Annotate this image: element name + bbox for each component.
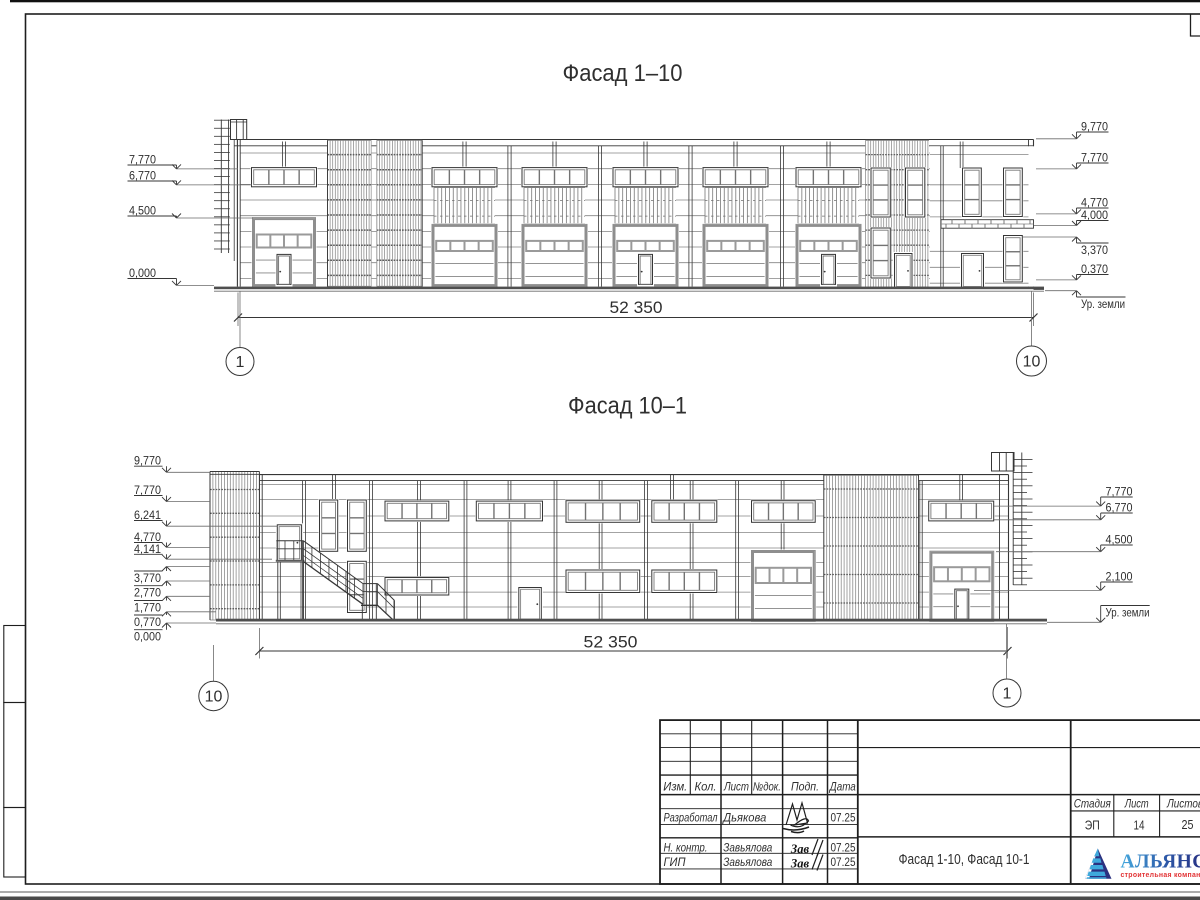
svg-text:2,770: 2,770 — [134, 588, 161, 600]
svg-text:ЭП: ЭП — [1085, 819, 1100, 833]
svg-text:Подп.: Подп. — [791, 780, 819, 794]
svg-text:Стадия: Стадия — [1074, 797, 1111, 811]
svg-text:Разработал: Разработал — [664, 813, 718, 825]
svg-text:52 350: 52 350 — [610, 299, 663, 317]
svg-text:Лист: Лист — [723, 780, 749, 794]
svg-text:Кол.: Кол. — [695, 780, 717, 794]
svg-text:Дьякова: Дьякова — [721, 813, 766, 825]
svg-text:Изм.: Изм. — [663, 780, 687, 794]
svg-text:52 350: 52 350 — [584, 634, 638, 652]
svg-text:25: 25 — [1182, 818, 1194, 832]
svg-text:АЛЬЯНС: АЛЬЯНС — [1121, 852, 1200, 873]
svg-text:Завьялова: Завьялова — [723, 857, 772, 869]
svg-text:07.25: 07.25 — [831, 855, 856, 869]
svg-text:0,000: 0,000 — [134, 632, 161, 644]
svg-text:Завьялова: Завьялова — [723, 843, 772, 855]
svg-text:10: 10 — [205, 689, 223, 706]
svg-text:10: 10 — [1023, 354, 1041, 371]
svg-text:ГИП: ГИП — [664, 857, 687, 869]
svg-text:07.25: 07.25 — [831, 811, 856, 825]
svg-text:Зав: Зав — [790, 857, 810, 871]
svg-text:3,770: 3,770 — [134, 573, 161, 585]
svg-text:07.25: 07.25 — [831, 841, 856, 855]
svg-text:Фасад 1-10, Фасад 10-1: Фасад 1-10, Фасад 10-1 — [899, 852, 1030, 868]
svg-text:№док.: №док. — [753, 780, 781, 794]
svg-text:1,770: 1,770 — [134, 603, 161, 615]
svg-text:Листов: Листов — [1166, 797, 1200, 811]
svg-text:Ур. земли: Ур. земли — [1081, 299, 1125, 311]
svg-text:Зав: Зав — [790, 842, 810, 856]
svg-text:Дата: Дата — [828, 780, 856, 794]
svg-text:1: 1 — [236, 354, 245, 371]
svg-text:Лист: Лист — [1124, 797, 1149, 811]
svg-text:0,770: 0,770 — [134, 617, 161, 629]
svg-text:Фасад 1–10: Фасад 1–10 — [563, 60, 683, 87]
svg-text:строительная компания: строительная компания — [1121, 872, 1200, 879]
svg-text:14: 14 — [1134, 819, 1145, 833]
svg-text:Фасад 10–1: Фасад 10–1 — [568, 393, 687, 420]
svg-text:1: 1 — [1003, 686, 1012, 703]
svg-text:Н. контр.: Н. контр. — [664, 843, 708, 855]
svg-text:Ур. земли: Ур. земли — [1106, 608, 1150, 620]
svg-text:3,370: 3,370 — [1081, 245, 1108, 257]
